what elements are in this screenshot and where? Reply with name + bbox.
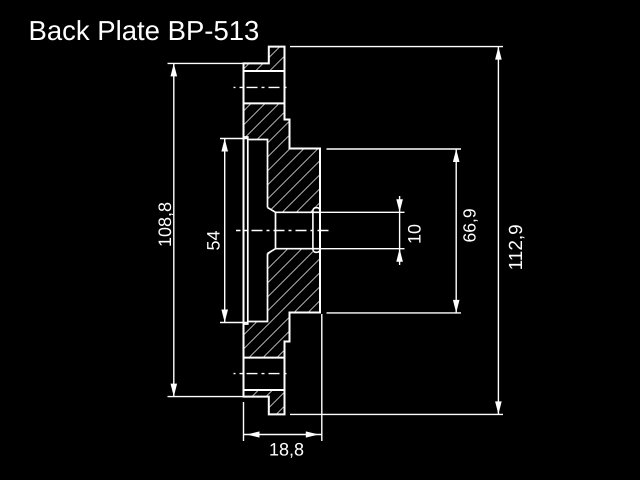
svg-text:66,9: 66,9	[460, 208, 480, 242]
svg-text:112,9: 112,9	[506, 224, 527, 270]
svg-text:108,8: 108,8	[155, 202, 175, 247]
svg-text:Back Plate BP-513: Back Plate BP-513	[29, 15, 260, 46]
svg-text:18,8: 18,8	[269, 440, 304, 460]
svg-text:54: 54	[204, 230, 224, 250]
svg-text:10: 10	[404, 224, 424, 244]
